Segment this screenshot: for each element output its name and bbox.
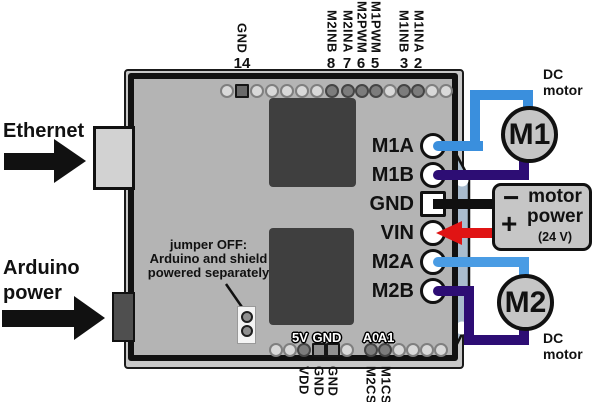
pin-top-gnd14 [235,84,249,98]
bottom-pin-label: VDD [297,366,312,395]
pin-bottom [283,343,297,357]
top-pin-label: M1INB [397,10,412,53]
top-pin-label: M2INA [341,10,356,53]
pin-top [439,84,453,98]
arduino-power-label-line1: Arduino [3,256,80,281]
terminal-label-m2b: M2B [330,281,414,301]
top-pin-number: 3 [400,55,408,73]
wiring-diagram: GND M2INB M2INA M2PWM M1PWM M1INB M1INA … [0,0,600,402]
m1-dc-motor-caption: DC motor [543,66,583,98]
silkscreen-a1: A1 [378,331,395,345]
pin-bottom-gnd [326,343,340,357]
arduino-power-arrow [2,310,74,327]
pin-top-5 [369,84,383,98]
pin-top [250,84,264,98]
power-jack [112,292,135,342]
top-pin-label: M2PWM [355,1,370,53]
bottom-pin-label: M2CS [364,366,379,402]
pin-top-8 [325,84,339,98]
bottom-pin-label: M1CS [379,366,394,402]
silkscreen-gnd: GND [313,331,342,345]
pin-top-7 [341,84,355,98]
terminal-label-m2a: M2A [330,252,414,272]
top-pin-number: 6 [357,55,365,73]
jumper-pin [241,311,253,323]
terminal-label-m1b: M1B [330,165,414,185]
top-pin-label: M1INA [412,10,427,53]
top-pin-label: M1PWM [369,1,384,53]
jumper-note-line2: Arduino and shield [136,252,281,266]
top-pin-label: M2INB [325,10,340,53]
pin-top-6 [355,84,369,98]
wire-m1b [433,170,529,180]
pin-bottom [392,343,406,357]
pin-bottom [269,343,283,357]
arduino-power-arrow-head [74,296,105,340]
ethernet-jack [93,126,135,190]
terminal-label-vin: VIN [330,223,414,243]
vin-arrow-head [436,221,462,245]
top-pin-number: 8 [327,55,335,73]
pin-top [295,84,309,98]
pin-bottom [420,343,434,357]
silkscreen-5v: 5V [292,331,308,345]
motor-m2: M2 [497,274,554,331]
pin-bottom [340,343,354,357]
top-pin-number: 7 [343,55,351,73]
pin-top [310,84,324,98]
bottom-pin-label: GND [312,366,327,396]
pin-bottom-a1 [378,343,392,357]
pin-bottom [434,343,448,357]
top-pin-label: GND [235,23,250,53]
plus-terminal: + [501,210,517,238]
power-supply-voltage: (24 V) [525,229,585,245]
pin-top-2 [411,84,425,98]
m2-dc-motor-caption: DC motor [543,330,583,362]
pin-top [220,84,234,98]
terminal-label-gnd: GND [330,194,414,214]
arduino-power-label: Arduino power [3,256,80,306]
jumper-note: jumper OFF: Arduino and shield powered s… [136,238,281,280]
top-pin-number: 2 [414,55,422,73]
motor-power-supply: − + motor power (24 V) [492,183,592,251]
pin-top [280,84,294,98]
motor-m2-label: M2 [505,286,547,320]
pin-top [383,84,397,98]
ethernet-arrow-head [54,139,86,183]
pin-top-3 [397,84,411,98]
jumper-pin [241,325,253,337]
top-pin-number: 5 [371,55,379,73]
pin-bottom [406,343,420,357]
jumper-note-line3: powered separately [136,266,281,280]
terminal-label-m1a: M1A [330,136,414,156]
power-supply-text: motor power (24 V) [525,187,585,245]
pin-bottom-5v [297,343,311,357]
pin-top [265,84,279,98]
jumper-note-line1: jumper OFF: [136,238,281,252]
motor-m1-label: M1 [509,118,551,152]
bottom-pin-label: GND [326,366,341,396]
pin-bottom-a0 [364,343,378,357]
motor-m1: M1 [501,106,558,163]
pin-bottom-gnd [312,343,326,357]
arduino-power-label-line2: power [3,281,80,306]
top-pin-number: 14 [234,55,251,73]
wire-m2a [433,257,529,267]
ethernet-arrow [4,153,54,170]
wire-gnd [433,199,497,209]
pin-top [425,84,439,98]
